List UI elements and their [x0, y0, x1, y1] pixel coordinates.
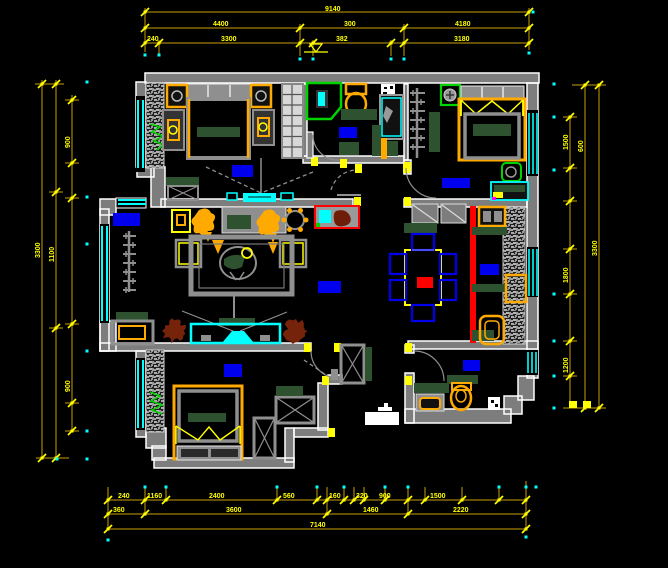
svg-text:3180: 3180 — [454, 36, 470, 43]
svg-text:1500: 1500 — [563, 134, 570, 150]
svg-text:9140: 9140 — [325, 6, 341, 13]
svg-text:3300: 3300 — [35, 242, 42, 258]
svg-text:1800: 1800 — [563, 267, 570, 283]
svg-text:240: 240 — [147, 36, 159, 43]
svg-text:900: 900 — [379, 493, 391, 500]
svg-text:382: 382 — [336, 36, 348, 43]
svg-text:2400: 2400 — [209, 493, 225, 500]
svg-text:900: 900 — [65, 380, 72, 392]
svg-text:1500: 1500 — [430, 493, 446, 500]
svg-text:560: 560 — [283, 493, 295, 500]
svg-text:4400: 4400 — [213, 21, 229, 28]
svg-text:1460: 1460 — [363, 507, 379, 514]
svg-text:1100: 1100 — [49, 247, 56, 262]
svg-text:240: 240 — [118, 493, 130, 500]
svg-text:600: 600 — [578, 140, 585, 152]
svg-text:7140: 7140 — [310, 522, 326, 529]
svg-text:2220: 2220 — [453, 507, 469, 514]
svg-text:900: 900 — [65, 136, 72, 148]
svg-text:3300: 3300 — [592, 240, 599, 256]
svg-text:360: 360 — [113, 507, 125, 514]
svg-text:1200: 1200 — [563, 357, 570, 373]
svg-text:300: 300 — [344, 21, 356, 28]
svg-text:3300: 3300 — [221, 36, 237, 43]
svg-text:4180: 4180 — [455, 21, 471, 28]
svg-text:1160: 1160 — [147, 493, 162, 500]
svg-text:3600: 3600 — [226, 507, 242, 514]
svg-text:320: 320 — [356, 493, 368, 500]
svg-text:160: 160 — [329, 493, 341, 500]
